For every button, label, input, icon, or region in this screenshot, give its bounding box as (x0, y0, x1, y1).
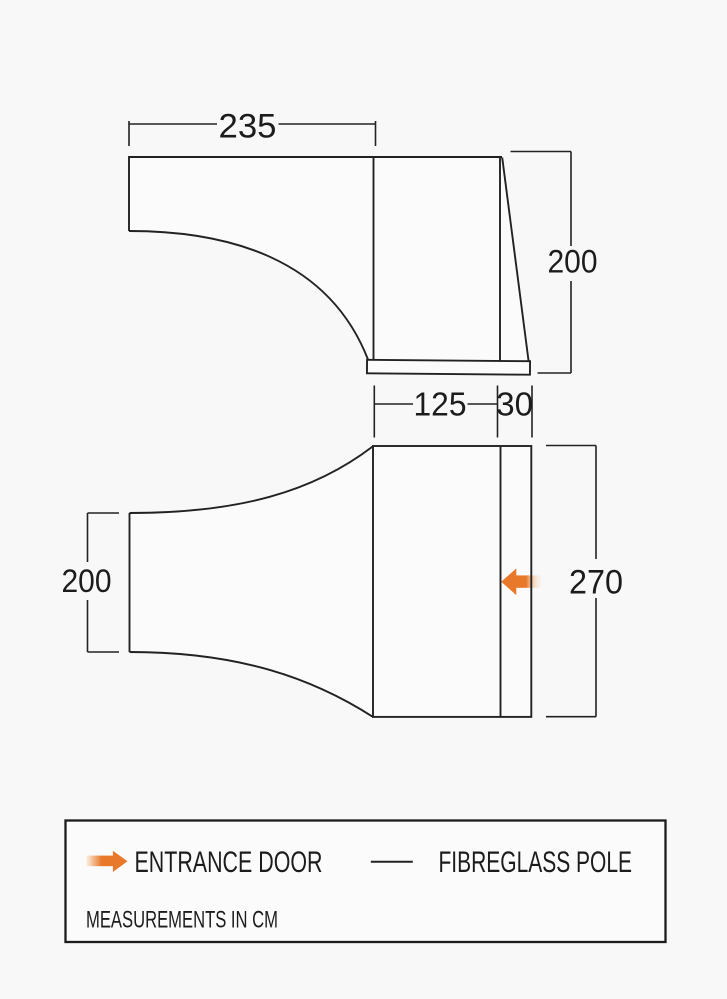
svg-text:200: 200 (548, 244, 598, 280)
svg-text:FIBREGLASS POLE: FIBREGLASS POLE (439, 846, 633, 879)
svg-text:235: 235 (219, 108, 277, 146)
svg-text:270: 270 (569, 564, 623, 602)
svg-text:MEASUREMENTS IN CM: MEASUREMENTS IN CM (86, 907, 278, 934)
svg-text:125: 125 (414, 386, 467, 423)
svg-text:30: 30 (496, 386, 533, 423)
svg-text:200: 200 (62, 563, 112, 599)
svg-text:ENTRANCE DOOR: ENTRANCE DOOR (135, 846, 323, 879)
